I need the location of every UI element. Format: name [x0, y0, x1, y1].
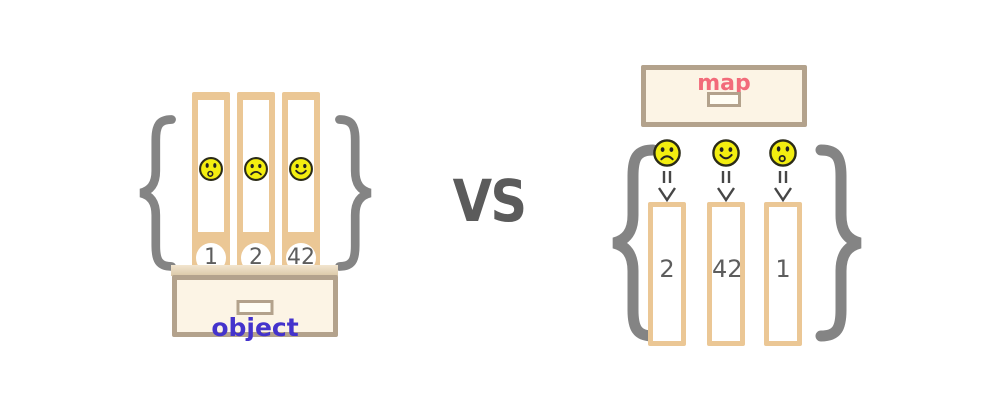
drawer-handle-icon: [707, 92, 741, 107]
value-label: 42: [712, 257, 740, 281]
maps-to-arrow-icon: [716, 170, 736, 206]
value-label: 1: [769, 257, 797, 281]
value-label: 2: [653, 257, 681, 281]
object-drawer: object: [172, 275, 338, 337]
left-curly-brace: [126, 114, 184, 272]
object-label: object: [177, 313, 333, 342]
value-box: 42: [707, 202, 745, 346]
sad-emoji-icon: [652, 138, 682, 172]
smiley-emoji-icon: [288, 156, 314, 186]
binder: 42: [282, 92, 320, 276]
sad-emoji-icon: [243, 156, 269, 186]
value-box: 1: [764, 202, 802, 346]
binder: 1: [192, 92, 230, 276]
vs-label: VS: [449, 172, 528, 230]
surprised-emoji-icon: [198, 156, 224, 186]
value-box: 2: [648, 202, 686, 346]
maps-to-arrow-icon: [657, 170, 677, 206]
object-vs-map-diagram: 1 2 42 object: [0, 0, 998, 420]
surprised-emoji-icon: [768, 138, 798, 172]
binder: 2: [237, 92, 275, 276]
maps-to-arrow-icon: [773, 170, 793, 206]
map-drawer: map: [641, 65, 807, 127]
smiley-emoji-icon: [711, 138, 741, 172]
right-curly-brace: [812, 134, 872, 352]
right-curly-brace: [327, 114, 385, 272]
